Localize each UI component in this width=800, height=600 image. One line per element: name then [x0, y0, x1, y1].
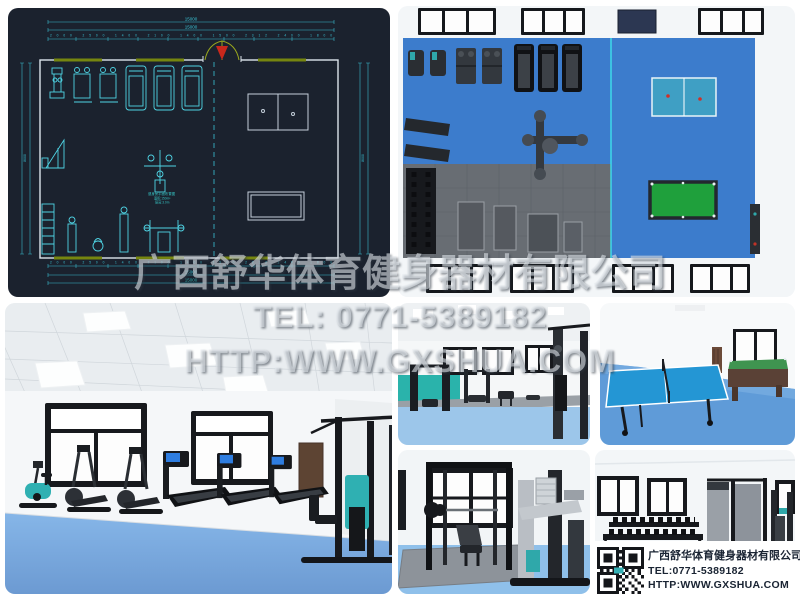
- info-tel: TEL:0771-5389182: [648, 564, 800, 578]
- dim-total-bottom: 15000: [185, 270, 198, 275]
- info-company-name: 广西舒华体育健身器材有限公司: [648, 549, 800, 564]
- billiard-table: [650, 182, 716, 219]
- multi-gym-glyph: [74, 68, 118, 103]
- cardio-room-illustration: [5, 303, 392, 594]
- room-outline: [40, 60, 338, 258]
- company-info-box: 广西舒华体育健身器材有限公司 TEL:0771-5389182 HTTP:WWW…: [593, 541, 800, 600]
- dim-total-top: 15000: [185, 17, 198, 22]
- panel-machines-room: [398, 303, 590, 445]
- qr-logo-accent: [614, 567, 623, 573]
- table-tennis-illustration: [600, 303, 795, 445]
- floor-plan-drawing: 15000 15000 2000 2500 1400 2100 1400 150…: [8, 8, 390, 297]
- panel-cardio-room: [5, 303, 392, 594]
- dim-total-top2: 15000: [185, 25, 198, 30]
- bench-press-glyph: [144, 220, 184, 252]
- wall-equipment: [750, 204, 760, 254]
- plan-caption-1: 健身房平面布置图: [148, 191, 176, 196]
- dim-left: 8000: [23, 154, 27, 162]
- gym-collage: 15000 15000 2000 2500 1400 2100 1400 150…: [0, 0, 800, 600]
- billiard-table-glyph: [248, 192, 304, 220]
- window: [428, 468, 513, 528]
- treadmill-glyphs: [126, 66, 202, 110]
- table-glyphs: [248, 94, 308, 220]
- rack-glyph: [42, 204, 54, 254]
- table-tennis-table: [652, 78, 716, 116]
- topdown-illustration: [398, 6, 795, 297]
- equipment-glyphs: [42, 66, 202, 254]
- window-right: [191, 411, 273, 485]
- leg-press-glyph: [42, 140, 64, 168]
- pingpong-table-glyph: [248, 94, 308, 130]
- qr-code-icon: [597, 547, 644, 594]
- multi-station-glyph: [144, 150, 176, 192]
- machines-room-illustration: [398, 303, 590, 445]
- stepper-glyph: [50, 68, 64, 98]
- ceiling-vent: [675, 305, 705, 311]
- dim-right: 8000: [361, 154, 365, 162]
- bench-back: [456, 525, 482, 545]
- wall-panel: [618, 10, 656, 33]
- panel-floor-plan: 15000 15000 2000 2500 1400 2100 1400 150…: [8, 8, 390, 297]
- window-left: [45, 403, 147, 487]
- stand-glyphs: [68, 207, 128, 252]
- panel-table-tennis-room: [600, 303, 795, 445]
- plan-caption-3: 层高:3.0m: [155, 200, 170, 205]
- dim-segments-bottom: 2000 2500 1400 2100 1400 1500 2312 2400 …: [50, 261, 332, 265]
- teal-wall-banner: [398, 375, 460, 401]
- dimension-lines-sides: [20, 63, 370, 254]
- left-window-sliver: [398, 470, 406, 530]
- dimension-lines-top: [48, 20, 334, 41]
- smith-machine-illustration: [398, 450, 590, 594]
- info-url: HTTP:WWW.GXSHUA.COM: [648, 578, 800, 592]
- panel-topdown-render: [398, 6, 795, 297]
- dim-segments-top: 2000 2500 1400 2100 1400 1500 2312 2400 …: [50, 34, 332, 38]
- panel-smith-machine: [398, 450, 590, 594]
- windows: [443, 345, 553, 375]
- dim-total-bottom2: 15000: [185, 278, 198, 283]
